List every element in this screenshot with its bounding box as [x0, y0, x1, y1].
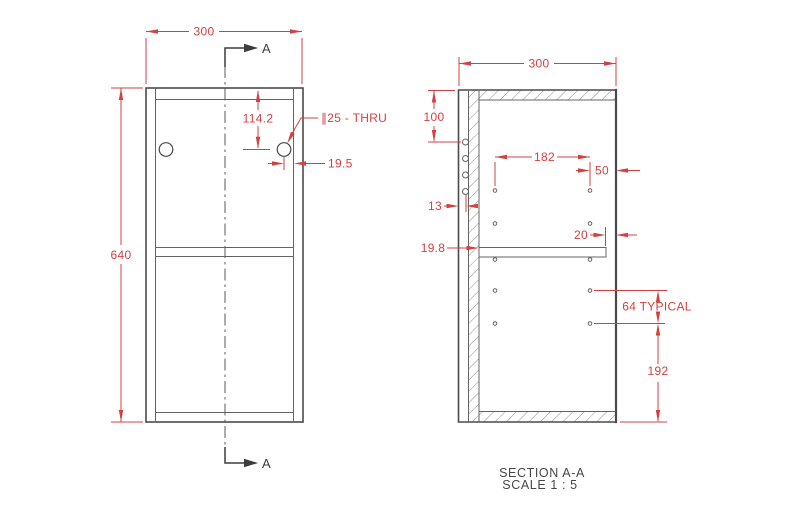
back-panel-hatch [469, 90, 480, 422]
dim-text-64-typical: 64 TYPICAL [622, 300, 692, 314]
bottom-panel-hatch [479, 412, 616, 423]
drawing-sheet: A A 300 640 114.2 ∥25 - THRU [0, 0, 800, 513]
section-scale: SCALE 1 : 5 [502, 478, 577, 492]
left-thru-hole [159, 143, 173, 157]
dim-text-182: 182 [534, 150, 555, 164]
section-label-top: A [262, 41, 271, 56]
engineering-drawing: A A 300 640 114.2 ∥25 - THRU [0, 0, 800, 513]
dim-text-19-8: 19.8 [421, 241, 446, 255]
section-caption: SECTION A-A SCALE 1 : 5 [499, 466, 585, 492]
dim-text-50: 50 [595, 164, 609, 178]
dim-text-20: 20 [574, 228, 588, 242]
hole-callout-text: ∥25 - THRU [321, 111, 387, 125]
dim-text-19-5: 19.5 [328, 157, 353, 171]
dim-text-114-2: 114.2 [243, 112, 274, 126]
dim-text-192: 192 [648, 364, 669, 378]
dim-text-100: 100 [424, 110, 445, 124]
dim-text-300-front: 300 [194, 25, 215, 39]
right-thru-hole [277, 143, 291, 157]
top-panel-hatch [479, 90, 616, 100]
dim-text-640: 640 [111, 248, 132, 262]
section-label-bottom: A [262, 456, 271, 471]
dim-text-300-section: 300 [529, 57, 550, 71]
dim-text-13: 13 [428, 199, 442, 213]
